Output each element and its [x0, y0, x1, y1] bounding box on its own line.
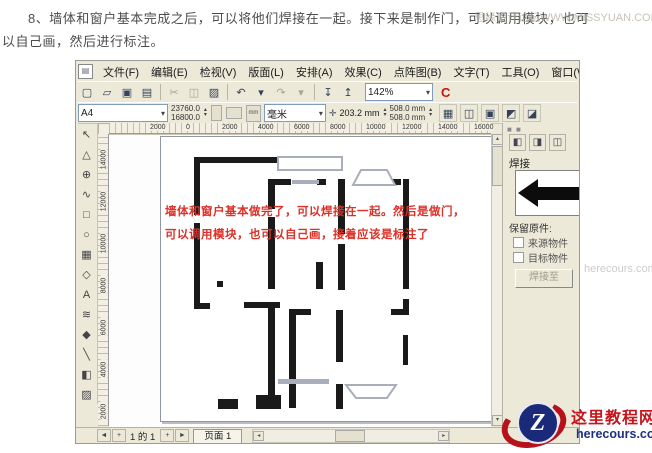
page-nav-after: +►	[159, 429, 189, 442]
v-ruler-tick: 6000	[101, 315, 108, 341]
add-page-after-icon[interactable]: +	[160, 429, 174, 442]
toolbar-separator	[160, 84, 161, 100]
side-watermark-text: herecours.com	[584, 263, 652, 275]
pick-tool[interactable]: ↖	[77, 125, 96, 144]
target-objects-label: 目标物件	[528, 250, 568, 265]
chevron-down-icon: ▾	[161, 109, 165, 118]
drawing-canvas[interactable]: 墙体和窗户基本做完了，可以焊接在一起。然后是做门， 可以调用模块，也可以自己画，…	[109, 134, 491, 427]
menu-item-7[interactable]: 文字(T)	[448, 63, 494, 81]
add-page-before-icon[interactable]: +	[112, 429, 126, 442]
chevron-down-icon: ▾	[319, 109, 323, 118]
menu-item-5[interactable]: 效果(C)	[340, 63, 387, 81]
canvas-annotation-line-1[interactable]: 墙体和窗户基本做完了，可以焊接在一起。然后是做门，	[165, 201, 465, 224]
h-ruler-tick: 2000	[221, 124, 239, 131]
bounding-box-icon[interactable]: ◪	[523, 104, 541, 122]
portrait-button[interactable]	[211, 105, 222, 121]
graph-paper-tool[interactable]: ▦	[77, 245, 96, 264]
window-segment[interactable]	[278, 379, 329, 384]
units-value: 毫米	[267, 106, 287, 121]
interactive-fill-tool[interactable]: ▨	[77, 385, 96, 404]
fill-tool[interactable]: ◧	[77, 365, 96, 384]
landscape-button[interactable]	[226, 107, 242, 119]
duplicate-y-value[interactable]: 508.0 mm	[390, 113, 426, 122]
page-indicator: 1 的 1	[130, 429, 155, 443]
bay-window[interactable]	[353, 170, 395, 185]
bay-window[interactable]	[346, 385, 396, 398]
menu-item-1[interactable]: 编辑(E)	[146, 63, 193, 81]
shape-tool[interactable]: △	[77, 145, 96, 164]
nudge-value[interactable]: 203.2 mm	[339, 108, 379, 118]
keep-original-label: 保留原件:	[509, 220, 552, 235]
toolbar-separator	[314, 84, 315, 100]
snap-object-icon[interactable]: ▣	[481, 104, 499, 122]
wall-segment[interactable]	[338, 244, 345, 290]
wall-segment[interactable]	[268, 305, 275, 405]
v-ruler-tick: 2000	[101, 399, 108, 425]
redo-dropdown-icon[interactable]: ▾	[292, 83, 310, 101]
copy-icon[interactable]: ◫	[185, 83, 203, 101]
menu-item-0[interactable]: 文件(F)	[98, 63, 144, 81]
new-icon[interactable]: ▢	[78, 83, 96, 101]
weld-docker: ■ ■ ◧◨◫ 焊接 保留原件: 来源物件 目标物件 焊接至	[502, 123, 580, 427]
last-page-icon[interactable]: ►	[175, 429, 189, 442]
redo-icon[interactable]: ↷	[272, 83, 290, 101]
nudge-spinner[interactable]: ▴▾	[384, 108, 387, 118]
toolbox: ↖△⊕∿□○▦◇A≋◆╲◧▨	[76, 123, 98, 404]
source-objects-checkbox[interactable]	[513, 237, 524, 248]
eyedropper-tool[interactable]: ◆	[77, 325, 96, 344]
ellipse-tool[interactable]: ○	[77, 225, 96, 244]
v-ruler-tick: 4000	[101, 357, 108, 383]
wall-segment[interactable]	[275, 179, 291, 185]
drawing-units-button[interactable]: mm	[246, 105, 261, 122]
wall-segment[interactable]	[336, 384, 343, 409]
chevron-down-icon: ▾	[426, 88, 430, 97]
nudge-icon: ✛	[329, 108, 337, 119]
paper-size-fields[interactable]: 23760.0 16800.0	[171, 104, 200, 122]
page-nav-before: ◄+	[96, 429, 126, 442]
scroll-right-icon[interactable]: ▸	[438, 431, 449, 441]
floorplan-drawing[interactable]	[151, 134, 491, 424]
trim-icon[interactable]: ◨	[529, 134, 546, 151]
save-icon[interactable]: ▣	[118, 83, 136, 101]
v-ruler-tick: 12000	[101, 189, 108, 215]
intersect-icon[interactable]: ◫	[549, 134, 566, 151]
undo-icon[interactable]: ↶	[232, 83, 250, 101]
h-ruler-tick: 8000	[329, 124, 347, 131]
zoom-level-combo[interactable]: 142% ▾	[365, 83, 433, 101]
scroll-left-icon[interactable]: ◂	[253, 431, 264, 441]
canvas-annotation-line-2[interactable]: 可以调用模块，也可以自己画，接着应该是标注了	[165, 224, 429, 247]
weld-icon[interactable]: ◧	[509, 134, 526, 151]
wall-segment[interactable]	[391, 309, 409, 315]
text-tool[interactable]: A	[77, 285, 96, 304]
snap-buttons: ▦◫▣◩◪	[439, 104, 541, 122]
paper-height-value[interactable]: 16800.0	[171, 113, 200, 122]
intro-line-2: 以自己画，然后进行标注。	[2, 31, 164, 50]
v-ruler-tick: 14000	[101, 147, 108, 173]
weld-arrow-icon	[518, 179, 538, 207]
paper-size-spinner[interactable]: ▴▾	[204, 108, 207, 118]
wall-segment[interactable]	[336, 310, 343, 362]
h-ruler-tick: 14000	[437, 124, 458, 131]
menu-bar: ▤ 文件(F)编辑(E)检视(V)版面(L)安排(A)效果(C)点阵图(B)文字…	[78, 63, 580, 80]
weld-preview	[515, 170, 580, 216]
h-ruler-tick: 4000	[257, 124, 275, 131]
page-tab[interactable]: 页面 1	[193, 429, 242, 443]
wall-segment[interactable]	[217, 281, 223, 287]
duplicate-x-value[interactable]: 508.0 mm	[390, 104, 426, 113]
wall-segment[interactable]	[244, 302, 280, 308]
polygon-tool[interactable]: ◇	[77, 265, 96, 284]
h-ruler-tick: 0	[185, 124, 191, 131]
freehand-tool[interactable]: ∿	[77, 185, 96, 204]
paste-icon[interactable]: ▨	[205, 83, 223, 101]
export-icon[interactable]: ↥	[339, 83, 357, 101]
interactive-blend-tool[interactable]: ≋	[77, 305, 96, 324]
v-ruler-tick: 8000	[101, 273, 108, 299]
wall-segment[interactable]	[194, 157, 282, 163]
target-objects-checkbox[interactable]	[513, 252, 524, 263]
source-objects-label: 来源物件	[528, 235, 568, 250]
units-combo[interactable]: 毫米 ▾	[264, 104, 326, 122]
h-ruler-tick: 12000	[401, 124, 422, 131]
print-icon[interactable]: ▤	[138, 83, 156, 101]
site-name: 这里教程网	[571, 404, 652, 428]
target-objects-row[interactable]: 目标物件	[513, 250, 568, 265]
wall-segment[interactable]	[316, 262, 323, 289]
h-ruler-tick: 10000	[365, 124, 386, 131]
duplicate-spinner[interactable]: ▴▾	[429, 108, 432, 118]
horizontal-scroll-thumb[interactable]	[335, 430, 365, 442]
property-bar: A4 ▾ 23760.0 16800.0 ▴▾ mm 毫米 ▾ ✛ 203.2 …	[78, 102, 577, 124]
undo-dropdown-icon[interactable]: ▾	[252, 83, 270, 101]
paper-type-value: A4	[81, 108, 93, 119]
zoom-tool[interactable]: ⊕	[77, 165, 96, 184]
paper-type-combo[interactable]: A4 ▾	[78, 104, 168, 122]
vertical-ruler[interactable]: 1400012000100008000600040002000	[98, 134, 109, 426]
zoom-level-value: 142%	[368, 87, 394, 98]
menu-item-3[interactable]: 版面(L)	[243, 63, 288, 81]
page-root: 8、墙体和窗户基本完成之后，可以将他们焊接在一起。接下来是制作门，可以调用模块，…	[0, 0, 652, 453]
watermark-text: 思缘设计论坛WWW.MISSYUAN.COM	[474, 9, 652, 25]
v-ruler-tick: 10000	[101, 231, 108, 257]
h-ruler-tick: 16000	[473, 124, 494, 131]
wall-segment[interactable]	[289, 309, 311, 315]
snap-grid-icon[interactable]: ▦	[439, 104, 457, 122]
cut-icon[interactable]: ✂	[165, 83, 183, 101]
horizontal-ruler[interactable]: 2000020004000600080001000012000140001600…	[109, 123, 491, 134]
site-url: herecours.com	[576, 427, 652, 441]
shaping-icon-row: ◧◨◫	[509, 134, 566, 151]
menu-item-4[interactable]: 安排(A)	[291, 63, 338, 81]
menu-item-9[interactable]: 窗口(W)	[546, 63, 580, 81]
h-ruler-tick: 6000	[293, 124, 311, 131]
horizontal-scrollbar[interactable]: ◂ ▸	[252, 429, 450, 443]
snap-guideline-icon[interactable]: ◫	[460, 104, 478, 122]
wall-segment[interactable]	[218, 399, 238, 409]
app-window: ▤ 文件(F)编辑(E)检视(V)版面(L)安排(A)效果(C)点阵图(B)文字…	[75, 60, 580, 444]
outline-tool[interactable]: ╲	[77, 345, 96, 364]
first-page-icon[interactable]: ◄	[97, 429, 111, 442]
rectangle-tool[interactable]: □	[77, 205, 96, 224]
open-icon[interactable]: ▱	[98, 83, 116, 101]
wall-segment[interactable]	[289, 315, 296, 408]
h-ruler-tick: 2000	[149, 124, 167, 131]
menu-item-2[interactable]: 检视(V)	[195, 63, 242, 81]
source-objects-row[interactable]: 来源物件	[513, 235, 568, 250]
wall-segment[interactable]	[194, 303, 210, 309]
treat-as-filled-icon[interactable]: ◩	[502, 104, 520, 122]
logo-badge-icon: Z	[517, 402, 559, 444]
app-launcher-button[interactable]: C	[441, 85, 450, 100]
window-segment[interactable]	[292, 180, 319, 184]
toolbar-separator	[227, 84, 228, 100]
docker-grip[interactable]: ■ ■	[507, 125, 522, 134]
window-segment[interactable]	[278, 157, 342, 170]
docker-title: 焊接	[509, 156, 530, 171]
menu-item-6[interactable]: 点阵图(B)	[389, 63, 447, 81]
wall-segment[interactable]	[256, 395, 281, 409]
logo-letter: Z	[531, 410, 546, 437]
wall-segment[interactable]	[403, 335, 408, 365]
standard-toolbar: ▢▱▣▤✂◫▨↶▾↷▾↧↥ 142% ▾ C	[78, 81, 577, 103]
weld-to-button[interactable]: 焊接至	[515, 269, 573, 288]
app-icon: ▤	[78, 64, 93, 79]
import-icon[interactable]: ↧	[319, 83, 337, 101]
paper-width-value[interactable]: 23760.0	[171, 104, 200, 113]
menu-item-8[interactable]: 工具(O)	[497, 63, 545, 81]
duplicate-distance-fields[interactable]: 508.0 mm 508.0 mm	[390, 104, 426, 122]
